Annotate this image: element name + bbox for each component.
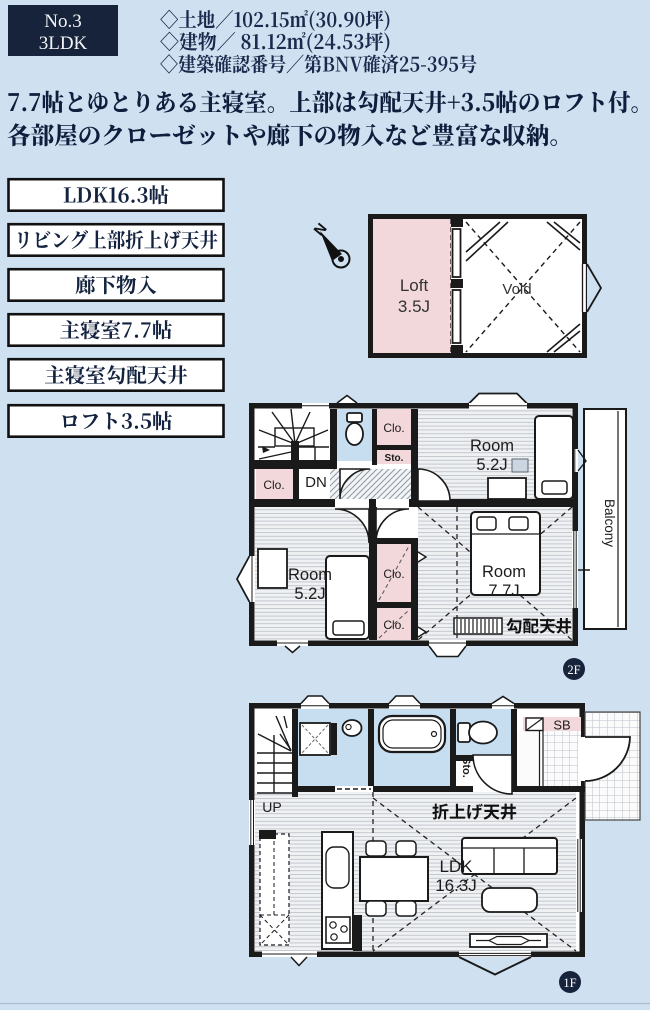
svg-text:No.3: No.3 xyxy=(44,11,81,32)
svg-text:Loft: Loft xyxy=(400,276,429,295)
svg-text:7.7J: 7.7J xyxy=(488,582,519,600)
svg-text:Sto.: Sto. xyxy=(385,453,404,464)
svg-text:Clo.: Clo. xyxy=(383,567,404,581)
svg-text:Clo.: Clo. xyxy=(263,478,284,492)
svg-text:5.2J: 5.2J xyxy=(294,585,325,603)
svg-text:Void: Void xyxy=(502,281,531,298)
svg-text:3LDK: 3LDK xyxy=(39,33,88,54)
svg-text:Clo.: Clo. xyxy=(383,618,404,632)
svg-text:Sto.: Sto. xyxy=(460,757,472,778)
svg-text:UP: UP xyxy=(262,799,281,815)
svg-text:2F: 2F xyxy=(567,663,580,677)
svg-text:1F: 1F xyxy=(563,976,576,990)
svg-text:SB: SB xyxy=(553,718,570,733)
svg-text:16.3J: 16.3J xyxy=(435,876,477,895)
svg-text:Room: Room xyxy=(288,566,332,584)
svg-text:5.2J: 5.2J xyxy=(476,456,507,474)
svg-text:Room: Room xyxy=(470,437,514,455)
svg-text:LDK: LDK xyxy=(439,857,473,876)
svg-text:DN: DN xyxy=(305,474,327,491)
svg-text:Clo.: Clo. xyxy=(383,421,404,435)
svg-text:3.5J: 3.5J xyxy=(398,297,430,316)
svg-text:Room: Room xyxy=(482,563,526,581)
svg-text:Balcony: Balcony xyxy=(602,499,617,547)
